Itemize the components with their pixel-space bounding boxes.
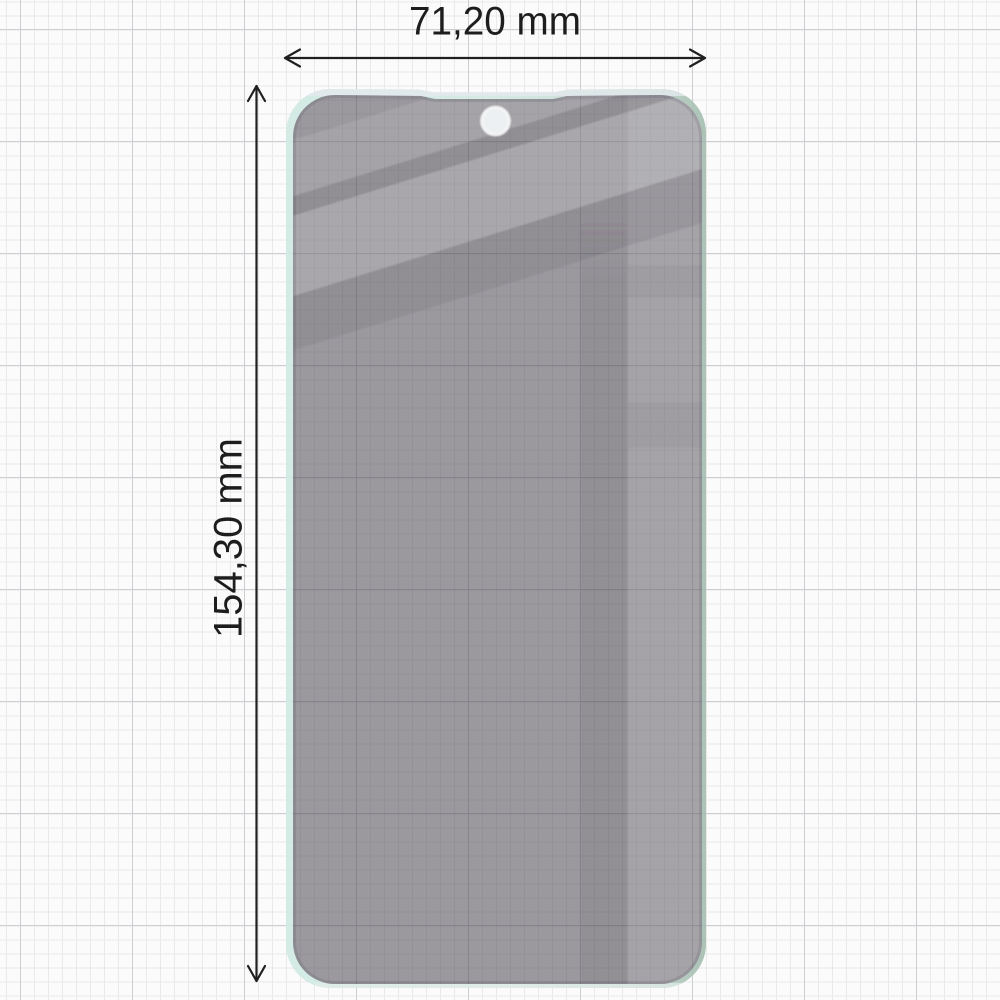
svg-text:154,30 mm: 154,30 mm xyxy=(207,438,251,638)
svg-text:71,20 mm: 71,20 mm xyxy=(409,0,581,44)
